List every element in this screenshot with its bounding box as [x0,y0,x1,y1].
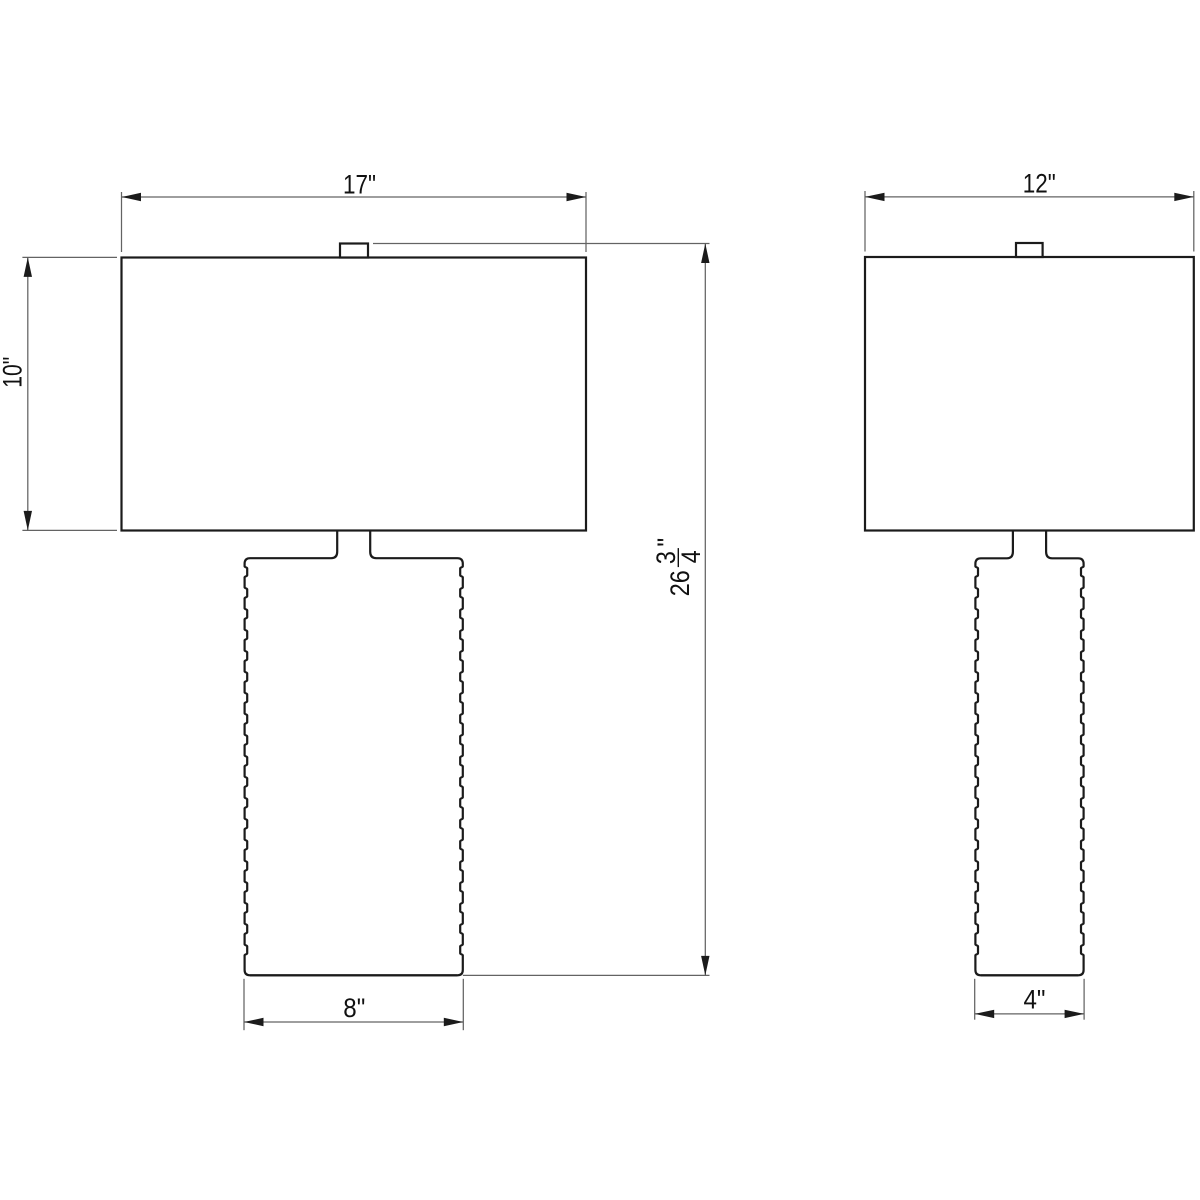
svg-text:": " [652,538,682,547]
svg-text:8": 8" [343,993,365,1023]
svg-text:10": 10" [0,357,27,388]
svg-text:4": 4" [1024,985,1046,1015]
svg-text:17": 17" [343,169,376,199]
svg-text:26: 26 [665,570,695,596]
svg-text:12": 12" [1023,168,1056,198]
svg-text:4: 4 [676,550,706,563]
